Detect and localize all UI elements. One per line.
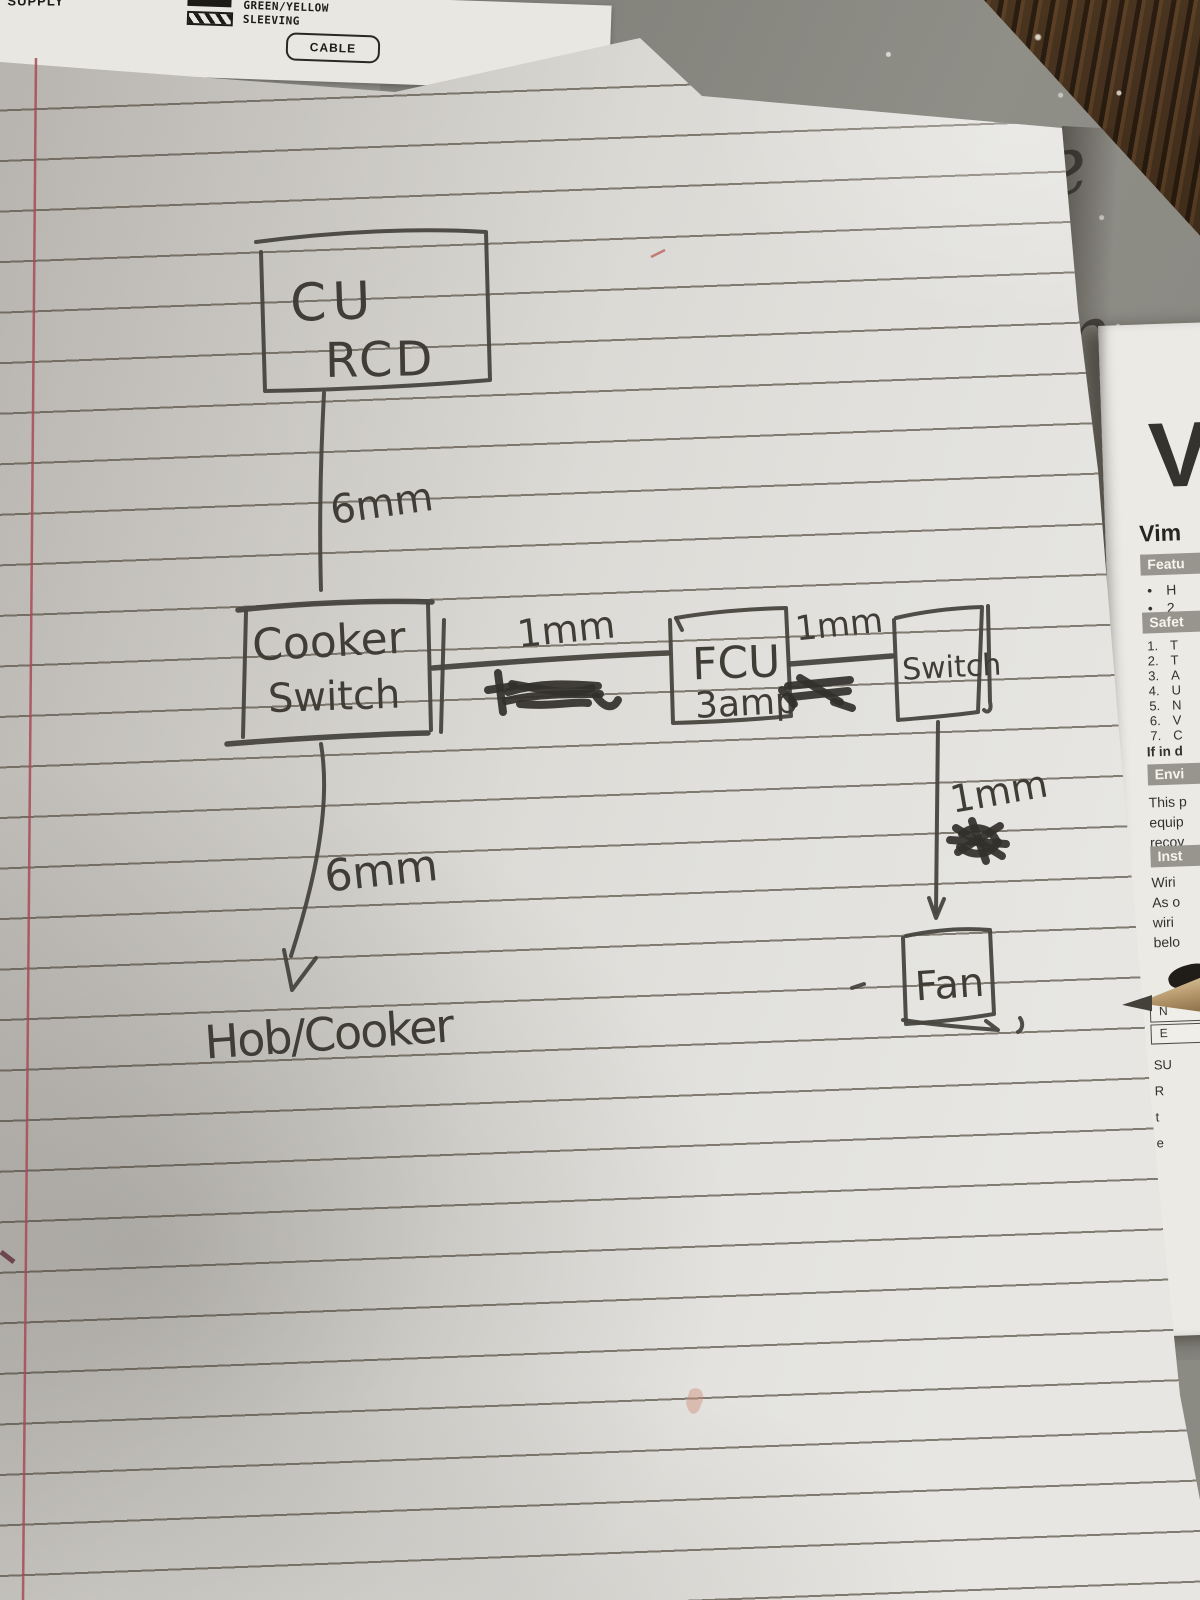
arrowhead-hob [284, 950, 316, 990]
svg-text:Cooker: Cooker [251, 613, 408, 672]
crossed-out-scribble [950, 821, 1006, 861]
node-switch: Switch [894, 606, 1002, 720]
crossed-out-scribble [488, 673, 618, 712]
wire-cooker-to-hob [291, 744, 324, 956]
svg-text:CU: CU [289, 271, 377, 334]
wire-label-1mm: 1mm [947, 761, 1051, 821]
pencil [1120, 965, 1200, 1020]
red-mark [651, 250, 665, 257]
wire-label-6mm: 6mm [322, 840, 440, 903]
wire-label-1mm: 1mm [515, 602, 617, 656]
wire-fcu-to-switch [790, 656, 892, 664]
edge-notch [1, 1252, 14, 1262]
node-fcu: FCU 3amp [670, 608, 799, 727]
wire-switch-to-fan [936, 722, 938, 912]
node-cu-rcd: CU RCD [256, 230, 490, 391]
pencil-graphite-tip [1122, 995, 1152, 1013]
node-cooker-switch: Cooker Switch [227, 601, 444, 744]
svg-text:Switch: Switch [901, 648, 1002, 688]
orange-stain [686, 1388, 703, 1414]
wire-label-1mm: 1mm [793, 601, 885, 650]
stray-comma [1018, 1018, 1022, 1032]
svg-text:Switch: Switch [267, 672, 401, 723]
svg-text:Fan: Fan [913, 960, 985, 1011]
stray-dash [852, 984, 864, 988]
wiring-diagram-ink: CU RCD 6mm Cooker Switch 1mm [0, 0, 1200, 1600]
photo-of-wiring-diagram: e m SUPPLY GREEN/YELLOW SLEEVING CABLE V… [0, 0, 1200, 1600]
node-fan: Fan [903, 929, 998, 1030]
hob-cooker-label: Hob/Cooker [203, 998, 456, 1069]
margin-line [23, 58, 36, 1600]
wire-cu-to-cooker [320, 393, 324, 590]
crossed-out-scribble [782, 678, 852, 708]
wire-label-6mm: 6mm [327, 474, 436, 534]
wire-cooker-to-fcu [433, 653, 668, 668]
svg-text:RCD: RCD [325, 331, 436, 389]
